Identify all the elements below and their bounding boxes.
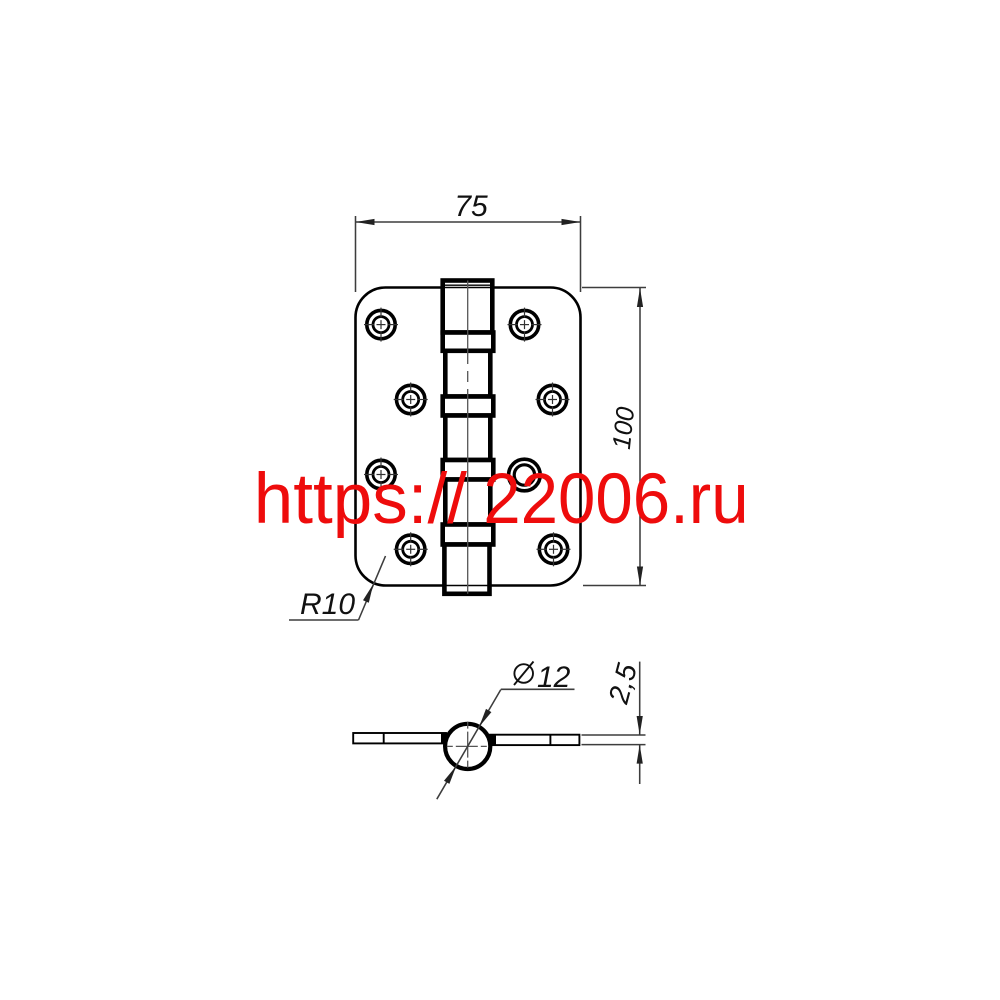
svg-text:R10: R10 (300, 588, 355, 621)
svg-text:https://: https:// (254, 460, 467, 539)
svg-text:12: 12 (537, 661, 571, 694)
svg-text:22006.ru: 22006.ru (483, 460, 748, 539)
svg-text:75: 75 (454, 190, 488, 223)
svg-text:100: 100 (608, 406, 640, 451)
